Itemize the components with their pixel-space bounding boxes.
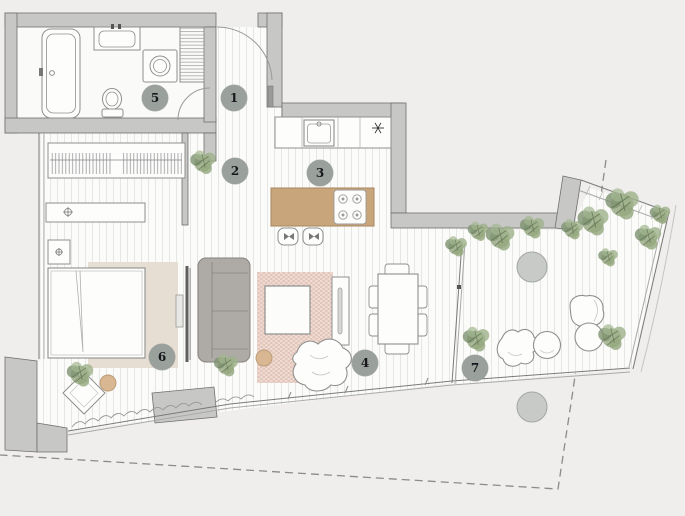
pouf-living [256, 350, 272, 366]
room-marker-7: 7 [462, 355, 488, 381]
toilet-bowl-inner [106, 92, 118, 106]
washing-machine-drum-inner [154, 60, 167, 73]
room-marker-2-label: 2 [231, 165, 239, 177]
room-marker-2: 2 [222, 158, 248, 184]
terrace-lounge-chair-1 [497, 330, 538, 367]
garden-boulder-outside [517, 392, 547, 422]
desk-shelf [46, 203, 145, 222]
room-marker-7-label: 7 [471, 362, 479, 374]
room-marker-5-label: 5 [151, 92, 159, 104]
room-marker-3: 3 [307, 160, 333, 186]
terrace-pouf-round [534, 332, 561, 359]
terrace-door-handle [457, 285, 461, 289]
tv-screen [176, 295, 183, 327]
toilet-tank [102, 109, 123, 117]
tv-sideboard-screen [338, 288, 342, 334]
terrace-lounge-chair-2 [570, 295, 604, 326]
terrace-boulder [517, 252, 547, 282]
tv-panel-track-2 [190, 268, 191, 360]
bathtub-drain-icon [50, 71, 55, 76]
dining-table [378, 274, 418, 344]
wall-bathroom-hall [204, 27, 216, 122]
dining-area [369, 264, 427, 354]
kitchen-door-leaf [268, 86, 273, 107]
pouf-bedroom [100, 375, 116, 391]
cooktop [334, 190, 366, 224]
room-marker-5: 5 [142, 85, 168, 111]
wall-pier-bottom-left-foot [37, 423, 67, 452]
bathtub-faucet-icon [39, 68, 43, 76]
wall-kitchen-right [391, 103, 406, 213]
bed [48, 268, 145, 358]
room-marker-4-label: 4 [361, 357, 369, 369]
room-marker-6: 6 [149, 344, 175, 370]
tv-panel-track [186, 266, 189, 362]
floor-plan: 1 2 3 4 5 6 7 [0, 0, 685, 516]
room-marker-4: 4 [352, 350, 378, 376]
bathroom-sink-basin [99, 31, 135, 47]
wall-bathroom-bedroom [5, 118, 216, 133]
room-marker-1: 1 [221, 85, 247, 111]
room-marker-1-label: 1 [230, 92, 238, 104]
wall-kitchen-top [282, 103, 403, 117]
wall-pier-bottom-left [5, 357, 37, 452]
wall-left-bathroom [5, 13, 17, 133]
lounge-chair [293, 339, 352, 391]
room-marker-6-label: 6 [158, 351, 166, 363]
floor-plan-drawing [0, 0, 685, 516]
coffee-table [265, 286, 310, 334]
sink-faucet-icon [111, 24, 114, 29]
sofa [198, 258, 250, 362]
bathroom-shelf-cabinet [180, 27, 204, 82]
wall-pier-bottom-center [152, 387, 217, 423]
wall-top [5, 13, 216, 27]
room-marker-3-label: 3 [316, 167, 324, 179]
sink-faucet-icon-2 [118, 24, 121, 29]
